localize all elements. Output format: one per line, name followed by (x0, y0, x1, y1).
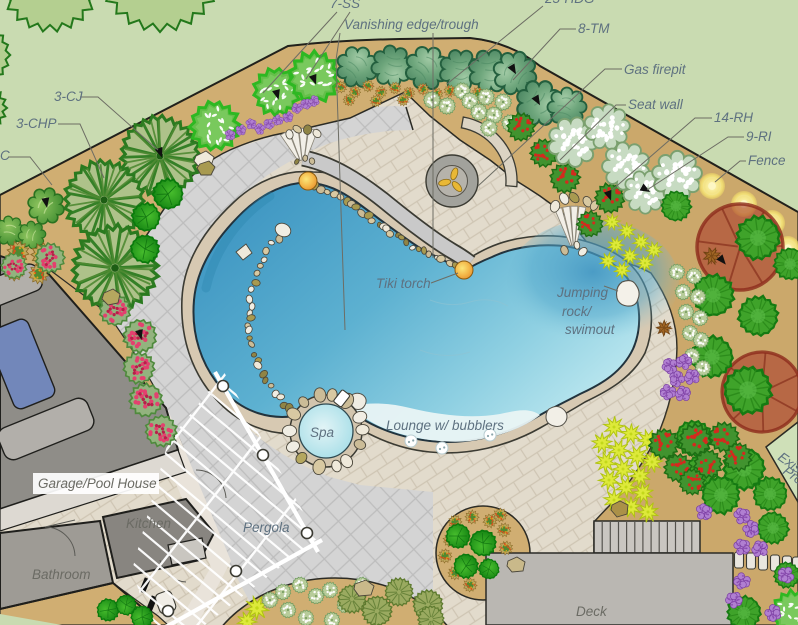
svg-text:7-SS: 7-SS (330, 0, 360, 11)
svg-text:Lounge w/ bubblers: Lounge w/ bubblers (386, 418, 504, 433)
svg-text:Tiki torch: Tiki torch (376, 276, 431, 291)
svg-text:9-RI: 9-RI (746, 129, 772, 144)
svg-text:rock/: rock/ (562, 304, 593, 319)
svg-text:Vanishing edge/trough: Vanishing edge/trough (344, 17, 479, 32)
svg-text:Fence: Fence (748, 153, 786, 168)
svg-text:Gas firepit: Gas firepit (624, 62, 687, 77)
svg-text:Spa: Spa (310, 425, 335, 440)
svg-text:Kitchen: Kitchen (126, 516, 171, 531)
svg-text:3-CHP: 3-CHP (16, 116, 57, 131)
svg-text:14-RH: 14-RH (714, 110, 753, 125)
svg-text:Deck: Deck (576, 604, 608, 619)
svg-text:Jumping: Jumping (556, 285, 609, 300)
svg-text:8-TM: 8-TM (578, 21, 610, 36)
svg-text:swimout: swimout (565, 322, 616, 337)
svg-text:Seat wall: Seat wall (628, 97, 684, 112)
svg-text:25-HDG: 25-HDG (544, 0, 595, 6)
svg-text:Bathroom: Bathroom (32, 567, 91, 582)
svg-text:Pergola: Pergola (243, 520, 290, 535)
svg-text:Garage/Pool House: Garage/Pool House (38, 476, 157, 491)
svg-text:C: C (0, 148, 10, 163)
svg-text:3-CJ: 3-CJ (54, 89, 83, 104)
